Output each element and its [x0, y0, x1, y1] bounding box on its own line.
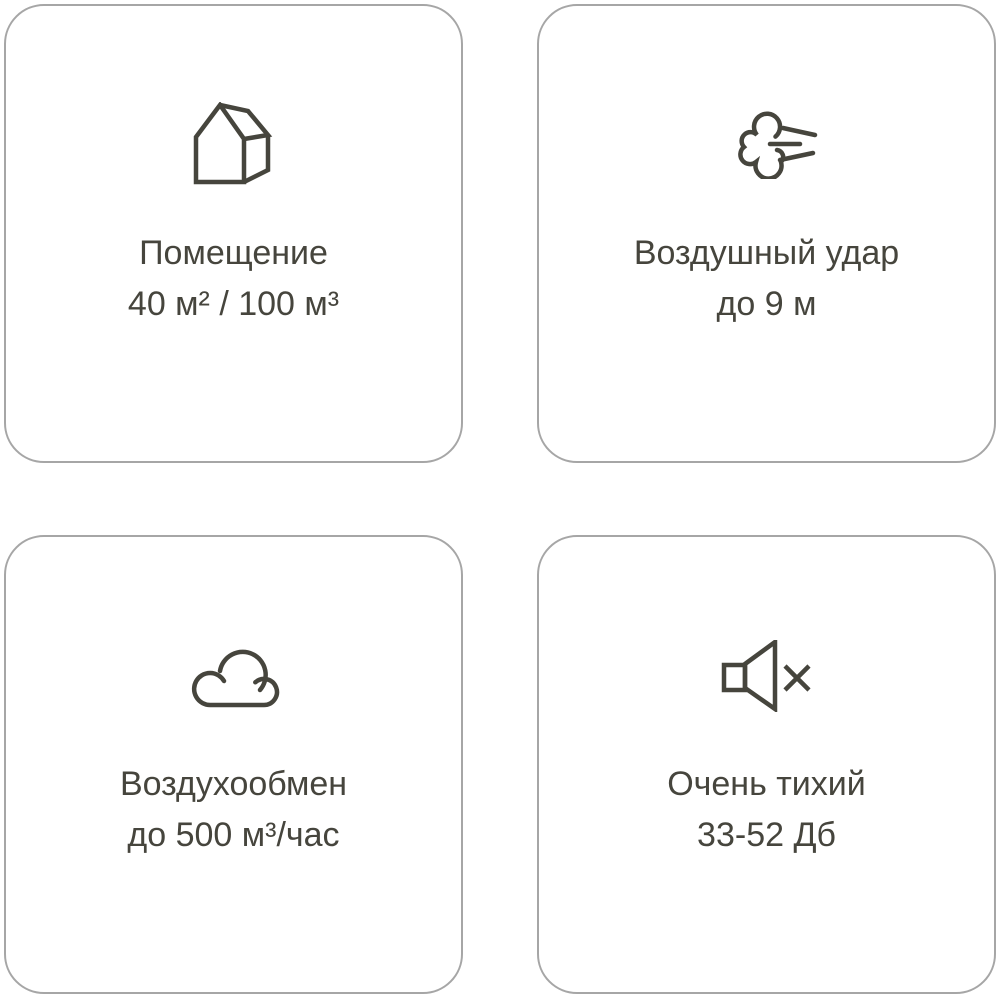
features-grid: Помещение 40 м² / 100 м³ Воздушный удар …	[0, 0, 1000, 1000]
feature-title: Очень тихий	[667, 759, 866, 810]
feature-title: Воздухообмен	[120, 759, 347, 810]
muted-speaker-icon	[721, 633, 813, 719]
feature-title: Помещение	[139, 228, 328, 279]
feature-value: 40 м² / 100 м³	[128, 279, 339, 330]
cloud-icon	[186, 633, 281, 719]
feature-title: Воздушный удар	[634, 228, 899, 279]
feature-card-air-throw: Воздушный удар до 9 м	[537, 4, 996, 463]
feature-card-air-exchange: Воздухообмен до 500 м³/час	[4, 535, 463, 994]
feature-value: 33-52 Дб	[697, 810, 836, 861]
feature-card-noise: Очень тихий 33-52 Дб	[537, 535, 996, 994]
feature-card-room: Помещение 40 м² / 100 м³	[4, 4, 463, 463]
feature-value: до 9 м	[717, 279, 817, 330]
feature-value: до 500 м³/час	[127, 810, 339, 861]
air-blow-icon	[716, 102, 818, 188]
house-icon	[193, 102, 275, 188]
